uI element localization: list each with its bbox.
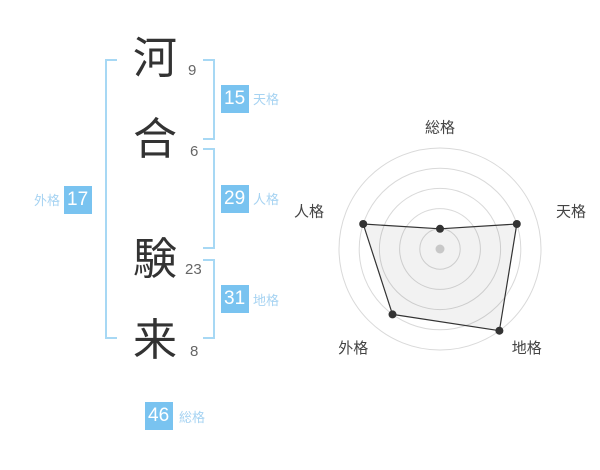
chikaku-label: 地格 [253, 294, 279, 308]
radar-axis-label-人格: 人格 [294, 204, 324, 221]
radar-point-地格 [495, 327, 503, 335]
radar-axis-label-外格: 外格 [338, 340, 368, 357]
tenkaku-score-badge: 15 [221, 85, 249, 113]
tenkaku-label: 天格 [253, 93, 279, 107]
radar-polygon [363, 224, 517, 331]
radar-chart: 総格天格地格外格人格 [290, 100, 600, 370]
radar-point-人格 [359, 220, 367, 228]
stroke-count-1: 9 [188, 64, 196, 78]
jinkaku-label: 人格 [253, 193, 279, 207]
name-char-4: 来 [130, 318, 180, 364]
radar-center-dot [436, 245, 445, 254]
jinkaku-score-badge: 29 [221, 185, 249, 213]
name-char-2: 合 [130, 117, 180, 163]
radar-point-天格 [513, 220, 521, 228]
stroke-count-2: 6 [190, 145, 198, 159]
stroke-count-3: 23 [185, 263, 202, 277]
jinkaku-bracket [203, 148, 215, 249]
soukaku-score-badge: 46 [145, 402, 173, 430]
chikaku-bracket [203, 259, 215, 339]
radar-axis-label-総格: 総格 [425, 119, 455, 136]
tenkaku-bracket [203, 59, 215, 140]
gaikaku-label: 外格 [34, 194, 60, 208]
gaikaku-score-badge: 17 [64, 186, 92, 214]
stroke-count-4: 8 [190, 345, 198, 359]
name-fortune-panel: 河 合 験 来 9 6 23 8 15 天格 29 人格 31 地格 17 外格… [0, 0, 600, 470]
radar-axis-label-地格: 地格 [512, 340, 542, 357]
gaikaku-bracket [105, 59, 117, 339]
name-char-1: 河 [130, 36, 180, 82]
radar-point-総格 [436, 225, 444, 233]
chikaku-score-badge: 31 [221, 285, 249, 313]
soukaku-label: 総格 [179, 411, 205, 425]
radar-axis-label-天格: 天格 [556, 204, 586, 221]
radar-point-外格 [389, 310, 397, 318]
name-char-3: 験 [130, 237, 180, 283]
